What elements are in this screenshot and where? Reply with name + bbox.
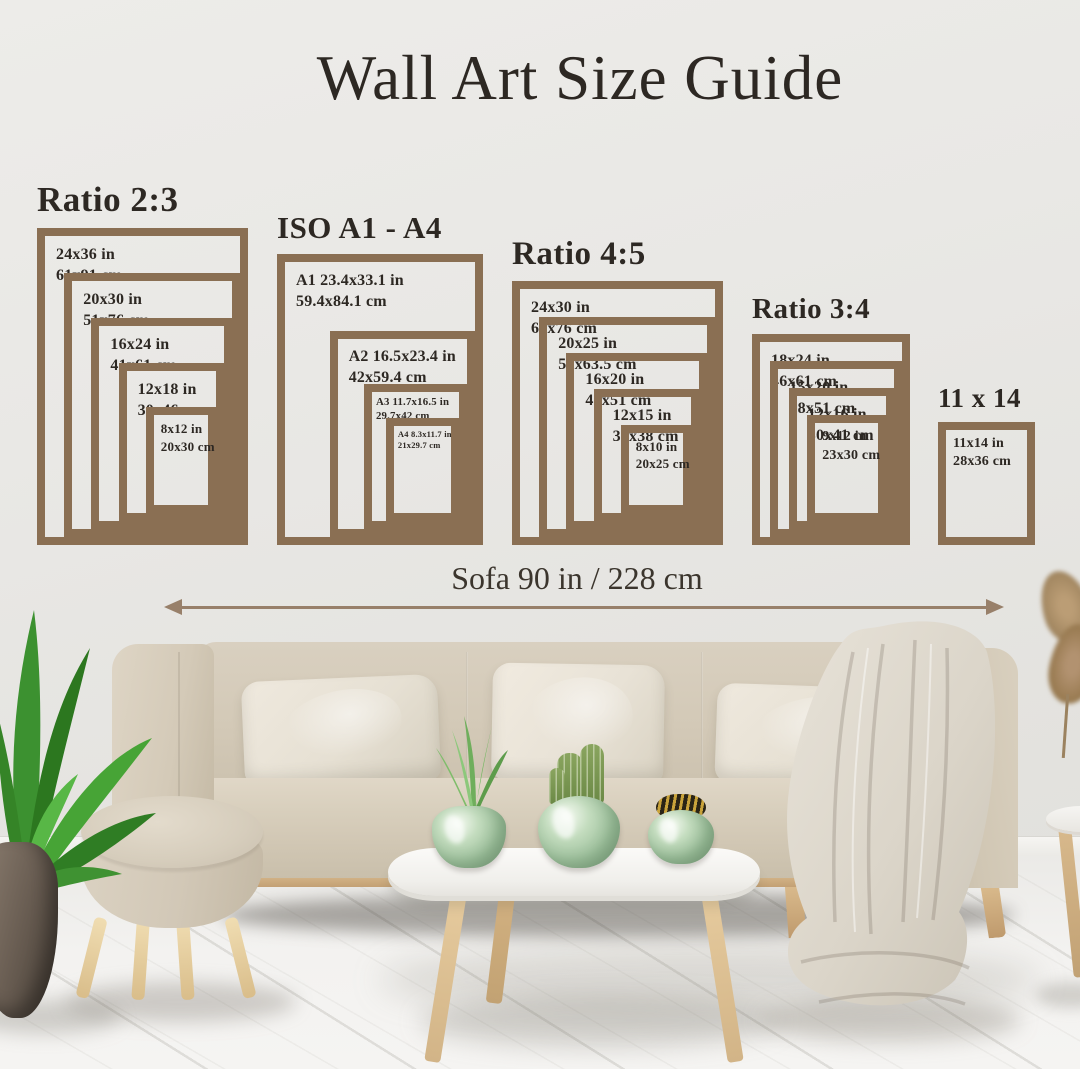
size-frame: A4 8.3x11.7 in21x29.7 cm	[386, 418, 459, 521]
throw-blanket	[735, 612, 1027, 1052]
frame-size-cm: 20x25 cm	[636, 455, 676, 472]
size-group-iso-a1-a4: ISO A1 - A4A1 23.4x33.1 in59.4x84.1 cmA2…	[277, 254, 483, 545]
frame-size-cm: 23x30 cm	[822, 447, 871, 465]
size-frame: 8x10 in20x25 cm	[621, 425, 691, 513]
size-frame: 9x12 in23x30 cm	[807, 415, 886, 521]
aloe-plant-icon	[430, 712, 514, 816]
group-title: Ratio 4:5	[512, 236, 646, 273]
frame-size-in: 12x18 in	[138, 379, 206, 400]
frame-size-in: A4 8.3x11.7 in	[398, 429, 447, 440]
size-frame: 8x12 in20x30 cm	[146, 407, 216, 513]
frame-size-cm: 21x29.7 cm	[398, 440, 447, 451]
frame-size-in: 20x30 in	[83, 289, 221, 310]
sofa-seam	[701, 652, 703, 794]
size-group-size-11x14: 11 x 1411x14 in28x36 cm	[938, 422, 1035, 545]
frame-size-in: 24x36 in	[56, 244, 229, 265]
page-title: Wall Art Size Guide	[270, 42, 890, 115]
arrow-line	[172, 606, 996, 609]
scene-root: Wall Art Size Guide Ratio 2:324x36 in61x…	[0, 0, 1080, 1069]
frame-size-in: A3 11.7x16.5 in	[376, 395, 455, 409]
group-title: Ratio 2:3	[37, 180, 179, 220]
vase-succulent	[648, 810, 714, 864]
group-title: Ratio 3:4	[752, 293, 870, 326]
group-title: ISO A1 - A4	[277, 210, 442, 246]
frame-size-cm: 28x36 cm	[953, 453, 1020, 471]
frame-size-in: 8x12 in	[161, 420, 201, 437]
frame-size-in: 11x14 in	[953, 435, 1020, 453]
size-group-ratio-4-5: Ratio 4:524x30 in61x76 cm20x25 in51x63.5…	[512, 281, 723, 545]
frame-size-cm: 20x30 cm	[161, 438, 201, 455]
frame-size-in: 16x20 in	[585, 369, 688, 390]
vase-cactus	[538, 796, 620, 868]
frame-size-cm: 59.4x84.1 cm	[296, 291, 464, 312]
group-title: 11 x 14	[938, 383, 1021, 414]
size-group-ratio-3-4: Ratio 3:418x24 in46x61 cm15x20 in38x51 c…	[752, 334, 910, 545]
frame-size-in: 12x15 in	[613, 405, 681, 426]
frame-size-in: A1 23.4x33.1 in	[296, 270, 464, 291]
cactus-plant-icon	[549, 744, 611, 804]
size-frame: 11x14 in28x36 cm	[938, 422, 1035, 545]
size-group-ratio-2-3: Ratio 2:324x36 in61x91 cm20x30 in51x76 c…	[37, 228, 248, 545]
frame-size-in: 20x25 in	[558, 333, 696, 354]
frame-size-in: A2 16.5x23.4 in	[349, 347, 456, 368]
frame-size-in: 9x12 in	[822, 428, 871, 446]
vase-aloe	[432, 806, 506, 868]
frame-size-in: 8x10 in	[636, 438, 676, 455]
pillow	[241, 674, 441, 788]
frame-size-in: 24x30 in	[531, 297, 704, 318]
frame-size-in: 16x24 in	[110, 334, 213, 355]
sofa-measurement-label: Sofa 90 in / 228 cm	[377, 560, 777, 597]
